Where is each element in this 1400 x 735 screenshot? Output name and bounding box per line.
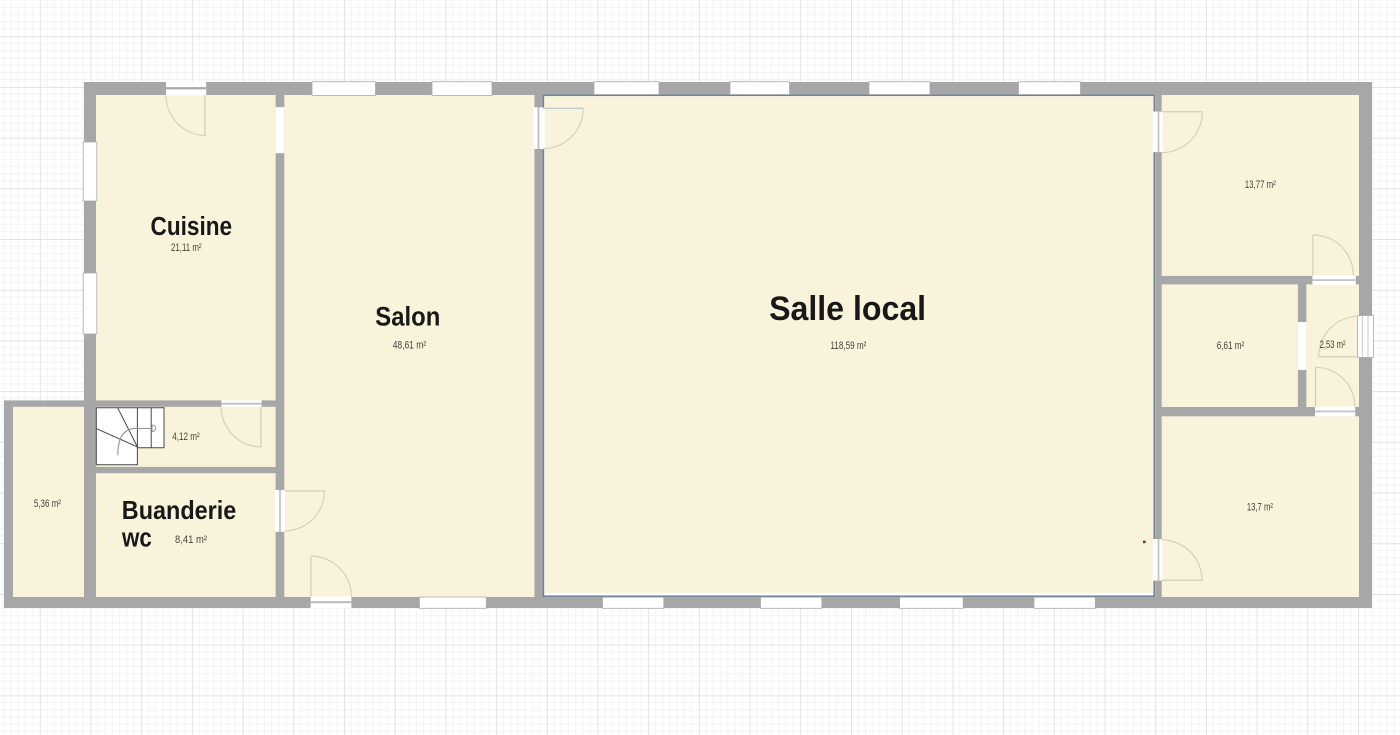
svg-text:Buanderie: Buanderie	[122, 495, 237, 525]
svg-text:4,12 m²: 4,12 m²	[172, 431, 200, 443]
svg-text:13,77 m²: 13,77 m²	[1245, 179, 1276, 191]
svg-text:Cuisine: Cuisine	[151, 213, 233, 241]
svg-text:5,36 m²: 5,36 m²	[34, 498, 61, 510]
svg-text:Salon: Salon	[375, 301, 440, 331]
svg-text:8,41 m²: 8,41 m²	[175, 534, 207, 546]
svg-text:13,7 m²: 13,7 m²	[1247, 502, 1273, 514]
svg-text:wc: wc	[121, 523, 152, 553]
svg-text:Salle local: Salle local	[769, 290, 926, 328]
svg-text:2,53 m²: 2,53 m²	[1320, 339, 1346, 351]
svg-text:48,61 m²: 48,61 m²	[393, 340, 427, 352]
svg-text:118,59 m²: 118,59 m²	[830, 340, 866, 352]
svg-text:21,11 m²: 21,11 m²	[171, 242, 202, 254]
svg-text:6,61 m²: 6,61 m²	[1217, 340, 1245, 352]
